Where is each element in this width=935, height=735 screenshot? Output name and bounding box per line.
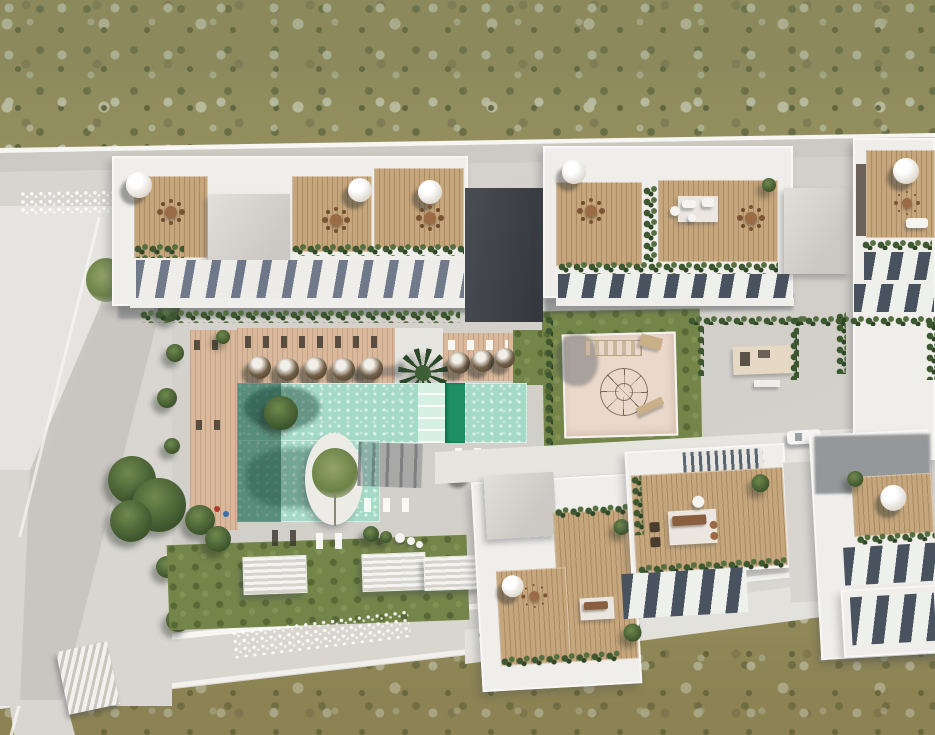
e-hedge-long bbox=[790, 316, 935, 326]
gym-hedge-bar-1 bbox=[697, 324, 704, 376]
deck-lawn-strip bbox=[513, 330, 545, 385]
nw-parasol-3 bbox=[418, 180, 442, 204]
sw-roof-block bbox=[484, 472, 557, 540]
se-solar-panels-1 bbox=[843, 543, 935, 586]
deco-sphere-1 bbox=[395, 533, 405, 543]
ne-round-table-2 bbox=[688, 214, 696, 222]
ne-dining-set-2 bbox=[745, 212, 757, 224]
sc-chair-2 bbox=[650, 537, 661, 548]
nw-planter-1 bbox=[134, 244, 184, 258]
parasol-2 bbox=[276, 358, 299, 381]
nw-dining-set-2 bbox=[330, 214, 342, 226]
e-solar-panels-1 bbox=[864, 252, 934, 280]
ne-round-table-1 bbox=[670, 206, 680, 216]
lounger-pair-white bbox=[316, 533, 346, 549]
sc-chair-1 bbox=[649, 522, 660, 533]
nw-hedge-south bbox=[140, 310, 460, 323]
e-sofa bbox=[906, 218, 928, 228]
aerial-site-render bbox=[0, 0, 935, 735]
climbing-frame bbox=[585, 340, 642, 356]
e-dining-set bbox=[902, 198, 912, 208]
garden-tree-big-3 bbox=[110, 500, 152, 542]
island-tree-trunk bbox=[334, 494, 336, 526]
block-gap-court bbox=[465, 188, 543, 322]
se-solar-panels-2 bbox=[850, 593, 935, 646]
ne-walkway-ledge bbox=[556, 298, 794, 306]
striped-planter-2 bbox=[361, 552, 426, 592]
kids-toy-blue bbox=[223, 511, 229, 517]
poolside-tree-west bbox=[264, 396, 298, 430]
kids-toy-red bbox=[214, 506, 220, 512]
parasol-4 bbox=[332, 358, 355, 381]
south-cluster bbox=[448, 407, 935, 693]
gym-equipment-1 bbox=[740, 352, 750, 366]
e-parasol bbox=[893, 158, 919, 184]
parasol-east-3 bbox=[495, 348, 515, 368]
ne-planter-col bbox=[643, 186, 657, 262]
parasol-3 bbox=[304, 357, 327, 380]
e-hedge-bar-1 bbox=[790, 330, 797, 380]
parasol-5 bbox=[360, 357, 383, 380]
nw-parasol-1 bbox=[126, 172, 152, 198]
nw-parasol-2 bbox=[348, 178, 372, 202]
deco-sphere-2 bbox=[407, 537, 415, 545]
sc-sofa bbox=[672, 514, 707, 526]
nw-walkway-ledge bbox=[130, 298, 468, 308]
west-sun-deck bbox=[190, 330, 238, 530]
ne-lounge-chair bbox=[702, 198, 714, 207]
west-deck-bush bbox=[216, 330, 230, 344]
nw-dining-set-3 bbox=[424, 212, 436, 224]
parasol-east-1 bbox=[448, 352, 470, 374]
nw-terrace-3 bbox=[374, 168, 464, 248]
parasol-1 bbox=[248, 356, 271, 379]
pool-sun-shelf-steps bbox=[418, 383, 445, 443]
ne-corner-plant bbox=[762, 178, 776, 192]
island-tree bbox=[312, 448, 358, 498]
pool-south-loungers bbox=[364, 498, 412, 512]
west-hedge-tree-4 bbox=[164, 438, 180, 454]
ne-terrace-2 bbox=[658, 180, 778, 262]
ne-planter-row bbox=[558, 262, 778, 274]
sw-sofa bbox=[584, 601, 608, 610]
ne-dining-set-1 bbox=[585, 205, 597, 217]
e-hedge-edge bbox=[926, 320, 935, 380]
nw-planter-row bbox=[292, 244, 464, 256]
playground-hedge-west bbox=[545, 315, 553, 445]
e-planter-row bbox=[862, 240, 932, 250]
topiary-ball-1 bbox=[363, 526, 379, 542]
pool-corner-tree-2 bbox=[205, 526, 231, 552]
sc-solar-panels bbox=[621, 567, 748, 619]
west-hedge-tree-2 bbox=[166, 344, 184, 362]
ne-terrace-1 bbox=[556, 182, 642, 266]
nw-dining-set-1 bbox=[165, 206, 177, 218]
nw-louvered-awnings bbox=[136, 260, 464, 300]
plaza-roof-block bbox=[784, 188, 850, 274]
deco-sphere-3 bbox=[416, 541, 423, 548]
lounger-pair-dark bbox=[272, 530, 302, 546]
west-hedge-tree-3 bbox=[157, 388, 177, 408]
gym-equipment-2 bbox=[758, 350, 770, 358]
pergola-shadow bbox=[357, 442, 422, 488]
ne-lounge-sofa bbox=[682, 200, 696, 208]
parasol-east-2 bbox=[472, 350, 494, 372]
topiary-ball-2 bbox=[380, 531, 392, 543]
north-deck-chairs bbox=[245, 336, 387, 348]
west-deck-loungers-2 bbox=[196, 420, 226, 430]
e-solar-panels-2 bbox=[854, 284, 934, 312]
e-hedge-bar-2 bbox=[836, 312, 846, 374]
gym-bench bbox=[754, 380, 780, 387]
striped-planter-1 bbox=[242, 555, 307, 595]
ne-parasol-1 bbox=[562, 160, 586, 184]
